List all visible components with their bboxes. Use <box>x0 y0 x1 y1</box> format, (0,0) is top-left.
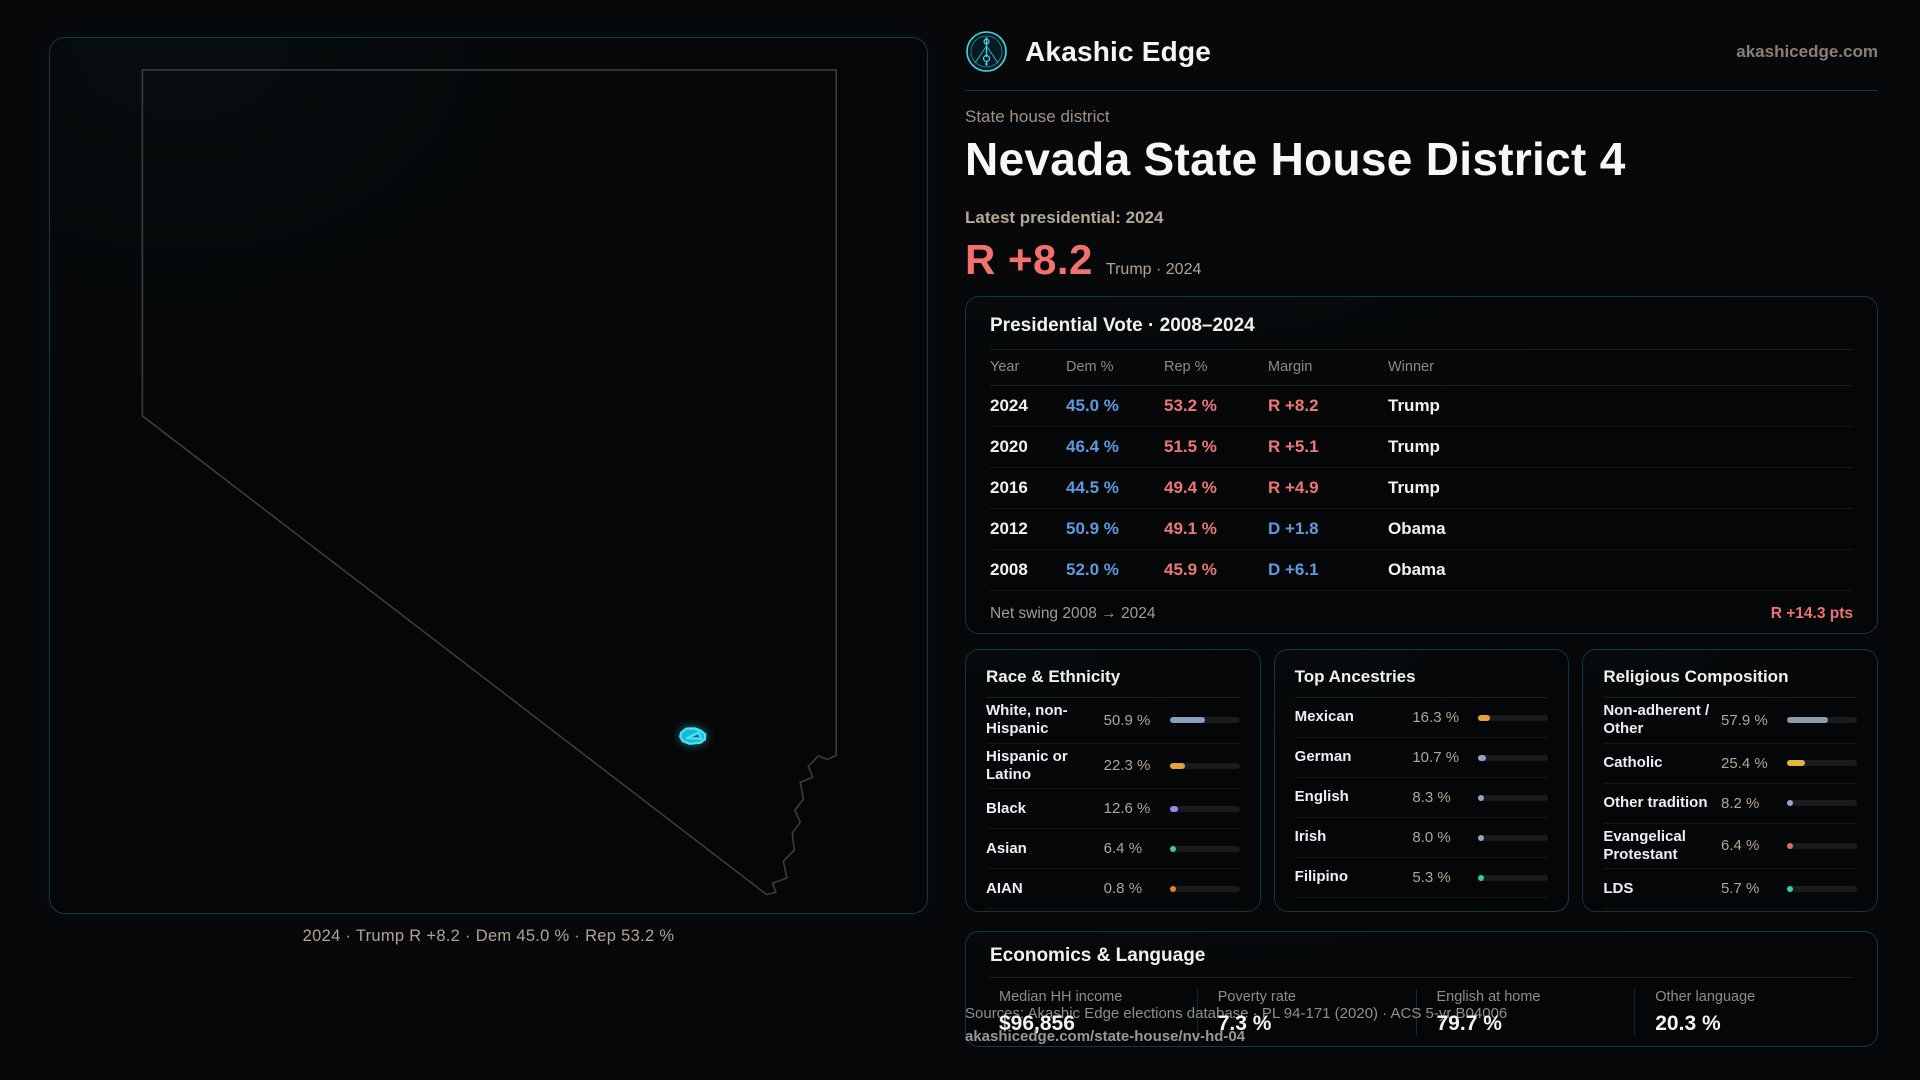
stat-bar-track <box>1787 886 1857 892</box>
economic-stat: Other language 20.3 % <box>1634 989 1853 1036</box>
site-domain-link[interactable]: akashicedge.com <box>1736 42 1878 62</box>
stat-bar-track <box>1170 717 1240 723</box>
stat-value: 12.6 % <box>1104 800 1164 817</box>
stat-label: Black <box>986 796 1098 822</box>
stat-bar-fill <box>1170 717 1206 723</box>
stat-bar-track <box>1170 886 1240 892</box>
latest-presidential-label: Latest presidential: 2024 <box>965 208 1163 228</box>
year-cell: 2024 <box>990 386 1066 427</box>
vote-table-row: 2016 44.5 % 49.4 % R +4.9 Trump <box>990 468 1853 509</box>
stat-row: White, non-Hispanic 50.9 % <box>986 698 1240 744</box>
stat-value: 6.4 % <box>1721 837 1781 854</box>
stat-bar-track <box>1478 715 1548 721</box>
stat-bar-track <box>1170 763 1240 769</box>
presidential-vote-panel: Presidential Vote · 2008–2024 Year Dem %… <box>965 296 1878 634</box>
stat-label: Asian <box>986 836 1098 862</box>
stat-value: 8.3 % <box>1412 789 1472 806</box>
stat-value: 57.9 % <box>1721 712 1781 729</box>
stat-value: 20.3 % <box>1655 1012 1853 1036</box>
stat-row: Non-adherent / Other 57.9 % <box>1603 698 1857 744</box>
stat-bar-track <box>1478 875 1548 881</box>
stat-bar-fill <box>1478 715 1489 721</box>
stat-row: German 10.7 % <box>1295 738 1549 778</box>
district-shape[interactable] <box>680 728 705 743</box>
economic-stat: English at home 79.7 % <box>1416 989 1635 1036</box>
margin-metric: R +8.2 <box>965 236 1093 284</box>
stat-label: English <box>1295 784 1407 810</box>
brand-name: Akashic Edge <box>1025 36 1211 68</box>
vote-table-row: 2012 50.9 % 49.1 % D +1.8 Obama <box>990 509 1853 550</box>
stat-value: 10.7 % <box>1412 749 1472 766</box>
stat-value: 0.8 % <box>1104 880 1164 897</box>
nevada-state-outline <box>142 70 836 895</box>
presidential-vote-table: Year Dem % Rep % Margin Winner 2024 45.0… <box>990 350 1853 591</box>
stat-value: 8.0 % <box>1412 829 1472 846</box>
stat-list: White, non-Hispanic 50.9 % Hispanic or L… <box>986 698 1240 909</box>
winner-cell: Trump <box>1388 386 1853 427</box>
stat-label: LDS <box>1603 876 1715 902</box>
stat-bar-fill <box>1170 846 1176 852</box>
economic-stat: Poverty rate 7.3 % <box>1197 989 1416 1036</box>
stat-row: Irish 8.0 % <box>1295 818 1549 858</box>
stat-bar-track <box>1787 760 1857 766</box>
stat-bar-fill <box>1478 795 1484 801</box>
stat-bar-track <box>1170 806 1240 812</box>
vote-table-row: 2008 52.0 % 45.9 % D +6.1 Obama <box>990 550 1853 591</box>
stat-bar-fill <box>1170 886 1176 892</box>
rep-pct-cell: 45.9 % <box>1164 550 1268 591</box>
stat-bar-track <box>1478 835 1548 841</box>
stat-panel: Top Ancestries Mexican 16.3 % German 10.… <box>1274 649 1570 912</box>
stat-value: 79.7 % <box>1437 1012 1635 1036</box>
stat-bar-track <box>1787 843 1857 849</box>
margin-cell: R +5.1 <box>1268 427 1388 468</box>
year-cell: 2016 <box>990 468 1066 509</box>
stat-bar-fill <box>1787 886 1793 892</box>
winner-cell: Trump <box>1388 468 1853 509</box>
stat-panel: Race & Ethnicity White, non-Hispanic 50.… <box>965 649 1261 912</box>
stat-row: Hispanic or Latino 22.3 % <box>986 744 1240 790</box>
net-swing-value: R +14.3 pts <box>1771 605 1853 623</box>
stat-label: Other language <box>1655 989 1853 1005</box>
stat-label: Mexican <box>1295 704 1407 730</box>
stat-value: 7.3 % <box>1218 1012 1416 1036</box>
margin-metric-row: R +8.2 Trump · 2024 <box>965 236 1201 284</box>
stat-row: Mexican 16.3 % <box>1295 698 1549 738</box>
stat-bar-track <box>1170 846 1240 852</box>
margin-cell: D +1.8 <box>1268 509 1388 550</box>
stat-label: Evangelical Protestant <box>1603 824 1715 869</box>
stat-bar-fill <box>1478 875 1484 881</box>
rep-pct-cell: 51.5 % <box>1164 427 1268 468</box>
economics-title: Economics & Language <box>990 945 1853 978</box>
presidential-vote-title: Presidential Vote · 2008–2024 <box>990 315 1853 350</box>
stat-panel-title: Religious Composition <box>1603 663 1857 698</box>
net-swing-label: Net swing 2008 → 2024 <box>990 605 1155 623</box>
stat-bar-fill <box>1787 717 1828 723</box>
stat-label: Filipino <box>1295 864 1407 890</box>
stat-bar-fill <box>1787 760 1805 766</box>
stat-label: Catholic <box>1603 750 1715 776</box>
stat-bar-track <box>1478 755 1548 761</box>
margin-cell: R +8.2 <box>1268 386 1388 427</box>
stat-label: Other tradition <box>1603 790 1715 816</box>
winner-cell: Obama <box>1388 550 1853 591</box>
stat-label: AIAN <box>986 876 1098 902</box>
margin-cell: D +6.1 <box>1268 550 1388 591</box>
stat-value: 50.9 % <box>1104 712 1164 729</box>
app-header: Akashic Edge akashicedge.com <box>965 30 1878 73</box>
column-header-rep: Rep % <box>1164 350 1268 386</box>
stat-bar-fill <box>1478 755 1485 761</box>
stat-label: Non-adherent / Other <box>1603 698 1715 743</box>
stat-row: Catholic 25.4 % <box>1603 744 1857 784</box>
stat-row: Other tradition 8.2 % <box>1603 784 1857 824</box>
district-type-eyebrow: State house district <box>965 107 1110 127</box>
stat-bar-track <box>1787 717 1857 723</box>
stat-row: Evangelical Protestant 6.4 % <box>1603 824 1857 870</box>
stat-bar-fill <box>1787 843 1793 849</box>
demographics-row: Race & Ethnicity White, non-Hispanic 50.… <box>965 649 1878 912</box>
stat-row: Black 12.6 % <box>986 789 1240 829</box>
stat-label: Irish <box>1295 824 1407 850</box>
stat-value: $96,856 <box>999 1012 1197 1036</box>
dem-pct-cell: 46.4 % <box>1066 427 1164 468</box>
winner-cell: Obama <box>1388 509 1853 550</box>
rep-pct-cell: 49.1 % <box>1164 509 1268 550</box>
stat-value: 25.4 % <box>1721 755 1781 772</box>
table-header-row: Year Dem % Rep % Margin Winner <box>990 350 1853 386</box>
year-cell: 2012 <box>990 509 1066 550</box>
economic-stat: Median HH income $96,856 <box>990 989 1197 1036</box>
stat-label: White, non-Hispanic <box>986 698 1098 743</box>
stat-panel-title: Race & Ethnicity <box>986 663 1240 698</box>
stat-bar-fill <box>1787 800 1793 806</box>
dem-pct-cell: 44.5 % <box>1066 468 1164 509</box>
stat-value: 16.3 % <box>1412 709 1472 726</box>
header-divider <box>965 90 1878 91</box>
stat-list: Non-adherent / Other 57.9 % Catholic 25.… <box>1603 698 1857 909</box>
vote-table-row: 2024 45.0 % 53.2 % R +8.2 Trump <box>990 386 1853 427</box>
stat-bar-fill <box>1170 806 1179 812</box>
nevada-map <box>50 38 927 913</box>
column-header-year: Year <box>990 350 1066 386</box>
stat-row: Asian 6.4 % <box>986 829 1240 869</box>
column-header-margin: Margin <box>1268 350 1388 386</box>
rep-pct-cell: 49.4 % <box>1164 468 1268 509</box>
stat-panel-title: Top Ancestries <box>1295 663 1549 698</box>
rep-pct-cell: 53.2 % <box>1164 386 1268 427</box>
stat-bar-fill <box>1170 763 1186 769</box>
column-header-winner: Winner <box>1388 350 1853 386</box>
stat-row: LDS 5.7 % <box>1603 869 1857 909</box>
stat-row: English 8.3 % <box>1295 778 1549 818</box>
margin-cell: R +4.9 <box>1268 468 1388 509</box>
district-map-panel <box>49 37 928 914</box>
stat-bar-track <box>1478 795 1548 801</box>
stat-bar-fill <box>1478 835 1484 841</box>
year-cell: 2008 <box>990 550 1066 591</box>
page-title: Nevada State House District 4 <box>965 132 1626 186</box>
stat-label: German <box>1295 744 1407 770</box>
stat-value: 22.3 % <box>1104 757 1164 774</box>
map-caption: 2024 · Trump R +8.2 · Dem 45.0 % · Rep 5… <box>49 927 928 946</box>
stat-bar-track <box>1787 800 1857 806</box>
margin-metric-note: Trump · 2024 <box>1106 261 1201 279</box>
stat-row: AIAN 0.8 % <box>986 869 1240 909</box>
stat-value: 5.7 % <box>1721 880 1781 897</box>
net-swing-row: Net swing 2008 → 2024 R +14.3 pts <box>990 591 1853 638</box>
stat-value: 5.3 % <box>1412 869 1472 886</box>
dem-pct-cell: 52.0 % <box>1066 550 1164 591</box>
stat-panel: Religious Composition Non-adherent / Oth… <box>1582 649 1878 912</box>
stat-row: Filipino 5.3 % <box>1295 858 1549 898</box>
dem-pct-cell: 50.9 % <box>1066 509 1164 550</box>
stat-list: Mexican 16.3 % German 10.7 % English 8.3… <box>1295 698 1549 898</box>
column-header-dem: Dem % <box>1066 350 1164 386</box>
dem-pct-cell: 45.0 % <box>1066 386 1164 427</box>
stat-value: 8.2 % <box>1721 795 1781 812</box>
stat-label: Hispanic or Latino <box>986 744 1098 789</box>
year-cell: 2020 <box>990 427 1066 468</box>
vote-table-row: 2020 46.4 % 51.5 % R +5.1 Trump <box>990 427 1853 468</box>
stat-value: 6.4 % <box>1104 840 1164 857</box>
akashic-edge-logo-icon <box>965 30 1008 73</box>
winner-cell: Trump <box>1388 427 1853 468</box>
